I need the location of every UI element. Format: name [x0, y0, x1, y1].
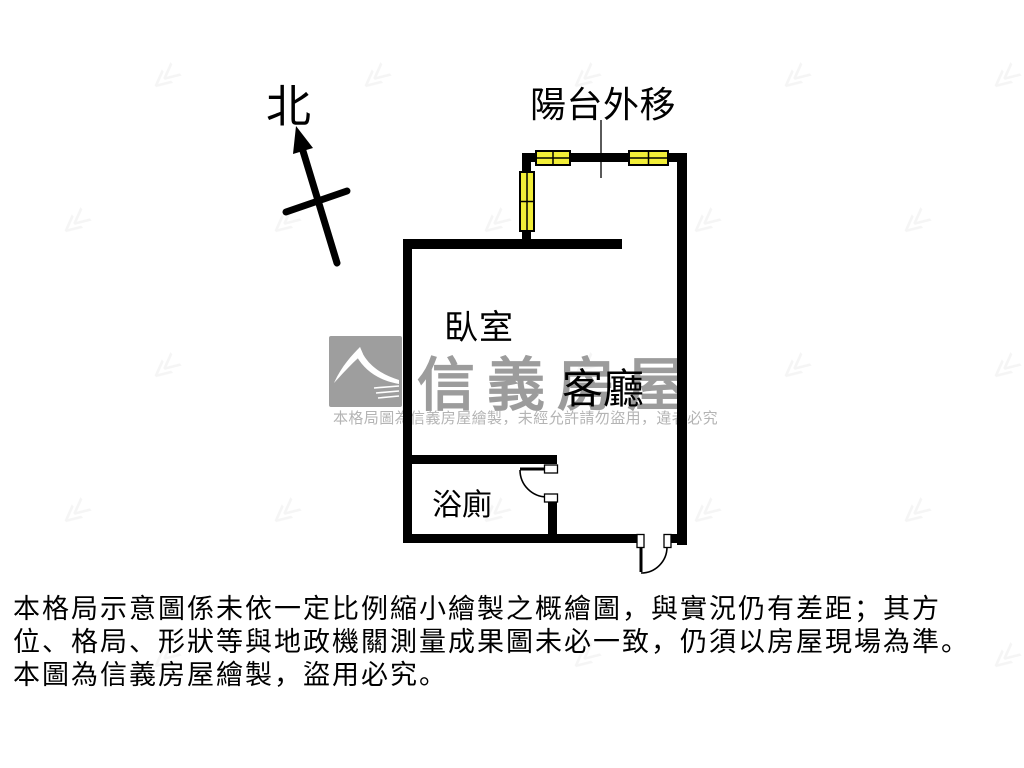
window-balcony-top-left [536, 151, 570, 165]
window-balcony-left [520, 172, 534, 231]
disclaimer-line-3: 本圖為信義房屋繪製，盜用必究。 [13, 659, 970, 692]
wall-balcony-left-upper [522, 153, 531, 174]
wall-right-exterior [677, 153, 687, 545]
bathroom-door [520, 465, 558, 502]
wall-bathroom-right [548, 500, 557, 543]
north-compass-icon [286, 126, 347, 263]
wall-bottom-left [403, 534, 638, 543]
window-balcony-top-right [629, 151, 668, 165]
floorplan-page: ≪≪≪≪≪≪≪≪≪≪≪≪≪≪≪≪≪≪≪≪≪≪≪ 信義房屋 本格局圖為信義房屋繪製… [0, 0, 1024, 768]
wall-left-exterior [403, 239, 412, 543]
disclaimer-line-2: 位、格局、形狀等與地政機關測量成果圖未必一致，仍須以房屋現場為準。 [13, 626, 970, 659]
wall-bathroom-top [403, 455, 557, 464]
disclaimer-text: 本格局示意圖係未依一定比例縮小繪製之概繪圖，與實況仍有差距；其方 位、格局、形狀… [13, 593, 970, 692]
entry-door [637, 535, 671, 574]
disclaimer-line-1: 本格局示意圖係未依一定比例縮小繪製之概繪圖，與實況仍有差距；其方 [13, 593, 970, 626]
wall-bedroom-top-interior [403, 239, 622, 249]
